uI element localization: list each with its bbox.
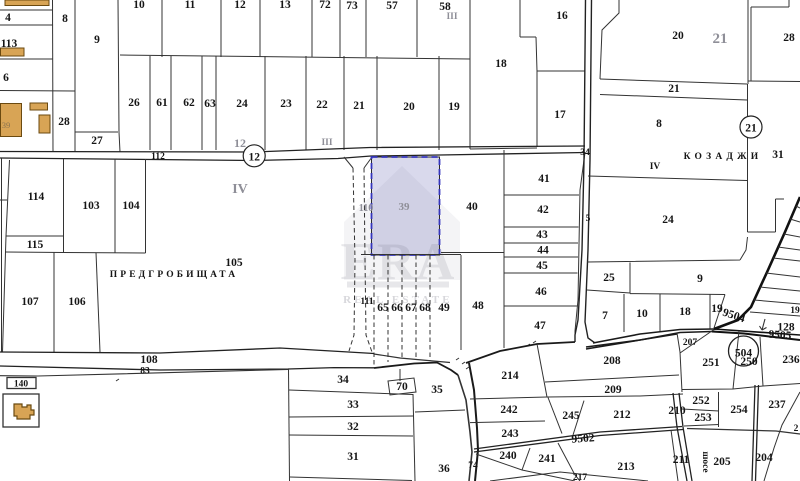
svg-text:шосе: шосе (700, 451, 710, 472)
svg-text:24: 24 (662, 214, 674, 226)
svg-text:115: 115 (27, 239, 44, 251)
svg-text:62: 62 (183, 97, 195, 109)
svg-text:21: 21 (668, 83, 680, 95)
svg-text:23: 23 (280, 98, 292, 110)
svg-text:43: 43 (536, 229, 548, 241)
svg-text:213: 213 (617, 461, 635, 473)
svg-text:67: 67 (405, 302, 417, 314)
svg-text:34: 34 (337, 374, 349, 386)
svg-text:36: 36 (438, 463, 450, 475)
svg-text:21: 21 (745, 123, 757, 135)
svg-text:112: 112 (151, 152, 165, 162)
svg-text:61: 61 (156, 97, 168, 109)
svg-text:IV: IV (232, 182, 248, 197)
svg-text:111: 111 (360, 297, 373, 307)
svg-text:70: 70 (396, 381, 408, 393)
svg-text:242: 242 (500, 404, 518, 416)
svg-text:63: 63 (204, 98, 216, 110)
svg-text:12: 12 (248, 152, 260, 164)
svg-text:21: 21 (353, 100, 365, 112)
svg-text:211: 211 (673, 454, 690, 466)
svg-text:57: 57 (386, 0, 398, 12)
svg-text:11: 11 (185, 0, 196, 11)
svg-text:72: 72 (319, 0, 331, 11)
svg-text:66: 66 (391, 302, 403, 314)
svg-text:74: 74 (468, 461, 478, 471)
svg-text:237: 237 (768, 399, 786, 411)
svg-text:21: 21 (713, 31, 728, 47)
svg-text:7: 7 (602, 310, 608, 322)
svg-text:83: 83 (140, 367, 150, 377)
svg-text:34: 34 (580, 148, 590, 158)
svg-text:12: 12 (234, 136, 246, 150)
svg-text:140: 140 (14, 380, 29, 390)
svg-text:39: 39 (399, 201, 411, 213)
svg-text:251: 251 (702, 357, 720, 369)
svg-text:207: 207 (683, 338, 698, 348)
svg-text:107: 107 (21, 296, 39, 308)
svg-text:106: 106 (68, 296, 86, 308)
svg-text:44: 44 (537, 245, 549, 257)
svg-text:49: 49 (438, 302, 450, 314)
svg-text:35: 35 (431, 384, 443, 396)
svg-text:27: 27 (91, 135, 103, 147)
svg-text:253: 253 (694, 412, 712, 424)
svg-text:IV: IV (650, 162, 661, 172)
svg-text:241: 241 (538, 453, 556, 465)
svg-text:47: 47 (534, 320, 546, 332)
svg-text:17: 17 (554, 109, 566, 121)
svg-text:204: 204 (755, 452, 773, 464)
svg-text:243: 243 (501, 428, 519, 440)
svg-text:108: 108 (140, 354, 158, 366)
svg-text:254: 254 (730, 404, 748, 416)
svg-text:18: 18 (495, 58, 507, 70)
svg-text:ПРЕДГРОБИЩАТА: ПРЕДГРОБИЩАТА (110, 270, 238, 280)
svg-text:104: 104 (122, 200, 140, 212)
svg-text:208: 208 (603, 355, 621, 367)
svg-text:28: 28 (58, 116, 70, 128)
svg-text:19: 19 (448, 101, 460, 113)
svg-text:42: 42 (537, 204, 549, 216)
svg-text:19: 19 (790, 306, 800, 316)
svg-text:46: 46 (535, 286, 547, 298)
svg-text:13: 13 (279, 0, 291, 11)
svg-text:214: 214 (501, 370, 519, 382)
svg-text:41: 41 (538, 173, 550, 185)
svg-text:68: 68 (419, 302, 431, 314)
svg-text:9: 9 (697, 273, 703, 285)
svg-text:КОЗАДЖИ: КОЗАДЖИ (684, 152, 763, 162)
svg-text:22: 22 (316, 99, 328, 111)
svg-text:32: 32 (347, 421, 359, 433)
svg-text:105: 105 (225, 257, 243, 269)
svg-text:114: 114 (28, 191, 45, 203)
svg-text:40: 40 (466, 201, 478, 213)
svg-text:252: 252 (692, 395, 710, 407)
svg-text:113: 113 (1, 38, 18, 50)
svg-text:4: 4 (5, 12, 11, 24)
svg-text:8: 8 (656, 118, 662, 130)
svg-text:217: 217 (573, 473, 588, 481)
svg-text:212: 212 (613, 409, 631, 421)
svg-text:18: 18 (679, 306, 691, 318)
svg-text:205: 205 (713, 456, 731, 468)
svg-text:16: 16 (556, 10, 568, 22)
svg-text:2: 2 (794, 424, 799, 434)
svg-text:39: 39 (2, 120, 11, 130)
svg-text:20: 20 (672, 30, 684, 42)
svg-text:19: 19 (711, 303, 723, 315)
svg-text:10: 10 (133, 0, 145, 11)
svg-text:45: 45 (536, 260, 548, 272)
svg-text:103: 103 (82, 200, 100, 212)
svg-text:33: 33 (347, 399, 359, 411)
svg-text:25: 25 (603, 272, 615, 284)
svg-text:III: III (446, 12, 457, 22)
svg-text:8: 8 (62, 13, 68, 25)
svg-text:10: 10 (636, 308, 648, 320)
svg-text:9505: 9505 (768, 329, 792, 343)
svg-text:245: 245 (562, 410, 580, 422)
svg-text:12: 12 (234, 0, 246, 11)
svg-text:III: III (321, 138, 332, 148)
svg-text:5: 5 (586, 214, 591, 224)
svg-text:48: 48 (472, 300, 484, 312)
svg-text:28: 28 (783, 32, 795, 44)
svg-text:250: 250 (740, 356, 758, 368)
svg-text:236: 236 (782, 354, 800, 366)
svg-text:240: 240 (499, 450, 517, 462)
svg-text:209: 209 (604, 384, 622, 396)
svg-text:31: 31 (772, 149, 784, 161)
svg-text:9502: 9502 (571, 432, 595, 446)
svg-text:6: 6 (3, 72, 9, 84)
svg-text:65: 65 (377, 302, 389, 314)
svg-text:73: 73 (346, 0, 358, 12)
svg-text:24: 24 (236, 98, 248, 110)
svg-text:26: 26 (128, 97, 140, 109)
svg-text:20: 20 (403, 101, 415, 113)
svg-text:9: 9 (94, 34, 100, 46)
svg-text:210: 210 (668, 405, 686, 417)
svg-text:110: 110 (359, 203, 373, 214)
svg-text:31: 31 (347, 451, 359, 463)
